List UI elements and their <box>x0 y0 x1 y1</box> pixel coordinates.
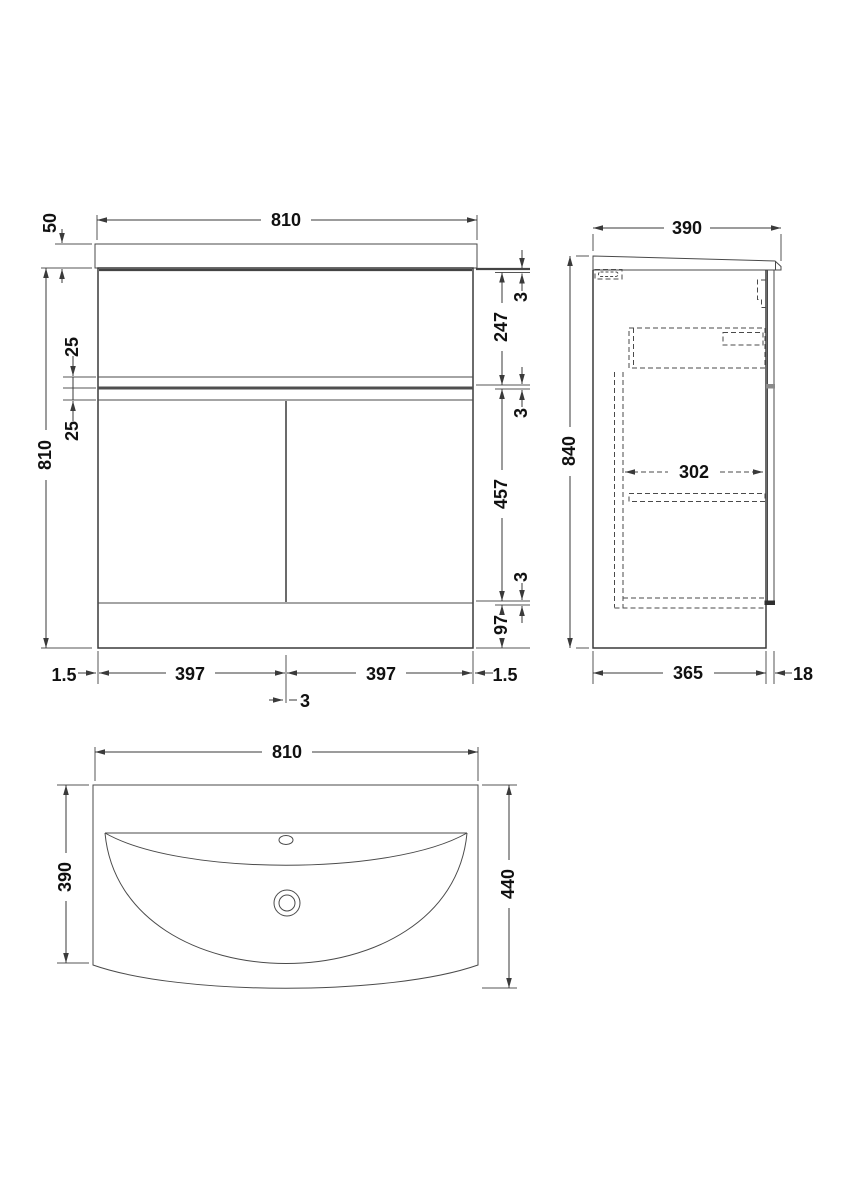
side-fixing-slot <box>599 272 619 277</box>
plan-overflow-hole <box>279 836 293 845</box>
front-elevation-view: 810 50 810 25 25 <box>35 210 531 711</box>
plan-basin-view: 810 390 440 <box>55 742 518 988</box>
front-door-width-left-label: 397 <box>175 664 205 684</box>
side-height-label: 840 <box>559 436 579 466</box>
side-carcass-depth-label: 365 <box>673 663 703 683</box>
front-dim-bottom-chain: 1.5 397 397 1.5 3 <box>51 651 517 711</box>
side-dim-height: 840 <box>559 256 589 648</box>
side-door-bottom-mark <box>765 601 776 606</box>
front-dim-worktop-height: 50 <box>40 213 92 283</box>
front-top-width-label: 810 <box>271 210 301 230</box>
plan-width-label: 810 <box>272 742 302 762</box>
side-section-view: 390 840 302 365 18 <box>559 218 813 684</box>
side-depth-label: 390 <box>672 218 702 238</box>
front-edge-gap-left-label: 1.5 <box>51 665 76 685</box>
plan-basin-outline <box>93 785 478 988</box>
front-gap-top-label: 3 <box>511 292 531 302</box>
front-gap-low-label: 3 <box>511 572 531 582</box>
technical-drawing-page: 810 50 810 25 25 <box>0 0 848 1200</box>
plan-waste-inner <box>279 895 295 911</box>
side-dim-bottom-chain: 365 18 <box>593 651 813 684</box>
side-fixing-rail <box>595 270 622 280</box>
front-dim-top-width: 810 <box>97 210 477 240</box>
side-dim-drawer-depth: 302 <box>625 462 763 482</box>
vanity-unit-dimension-drawing: 810 50 810 25 25 <box>0 0 848 1200</box>
plan-dim-width: 810 <box>95 742 478 781</box>
side-hidden-details <box>595 270 766 609</box>
side-shelf <box>629 494 765 502</box>
front-dim-rail-overlaps: 25 25 <box>62 337 96 441</box>
side-drawer-runner-bracket <box>758 280 767 308</box>
front-rail-lower-label: 25 <box>62 421 82 441</box>
plan-dim-basin-depth: 390 <box>55 785 89 963</box>
front-dim-overall-height: 810 <box>35 268 92 648</box>
front-overall-height-label: 810 <box>35 440 55 470</box>
front-dim-right-chain: 3 247 3 457 3 97 <box>476 250 531 648</box>
plan-waste-outer <box>274 890 300 916</box>
front-drawer-height-label: 247 <box>491 312 511 342</box>
plan-dim-overall-depth: 440 <box>482 785 518 988</box>
front-worktop-height-label: 50 <box>40 213 60 233</box>
plan-basin-depth-label: 390 <box>55 862 75 892</box>
front-door-height-label: 457 <box>491 479 511 509</box>
side-drawer-door-gap-mark <box>766 384 775 389</box>
front-rail-upper-label: 25 <box>62 337 82 357</box>
side-carcass <box>593 270 766 648</box>
plan-overall-depth-label: 440 <box>498 869 518 899</box>
side-drawer-front-rail <box>723 333 763 346</box>
side-drawer-box <box>629 328 765 368</box>
plan-bowl-inner-curve <box>105 833 467 865</box>
side-dim-depth: 390 <box>593 218 781 261</box>
front-plinth-height-label: 97 <box>491 615 511 635</box>
front-edge-gap-right-label: 1.5 <box>492 665 517 685</box>
front-door-width-right-label: 397 <box>366 664 396 684</box>
side-drawer-depth-label: 302 <box>679 462 709 482</box>
side-door-thickness-label: 18 <box>793 664 813 684</box>
front-worktop <box>95 244 477 268</box>
front-gap-mid-label: 3 <box>511 408 531 418</box>
front-door-gap-label: 3 <box>300 691 310 711</box>
side-worktop <box>593 256 781 270</box>
